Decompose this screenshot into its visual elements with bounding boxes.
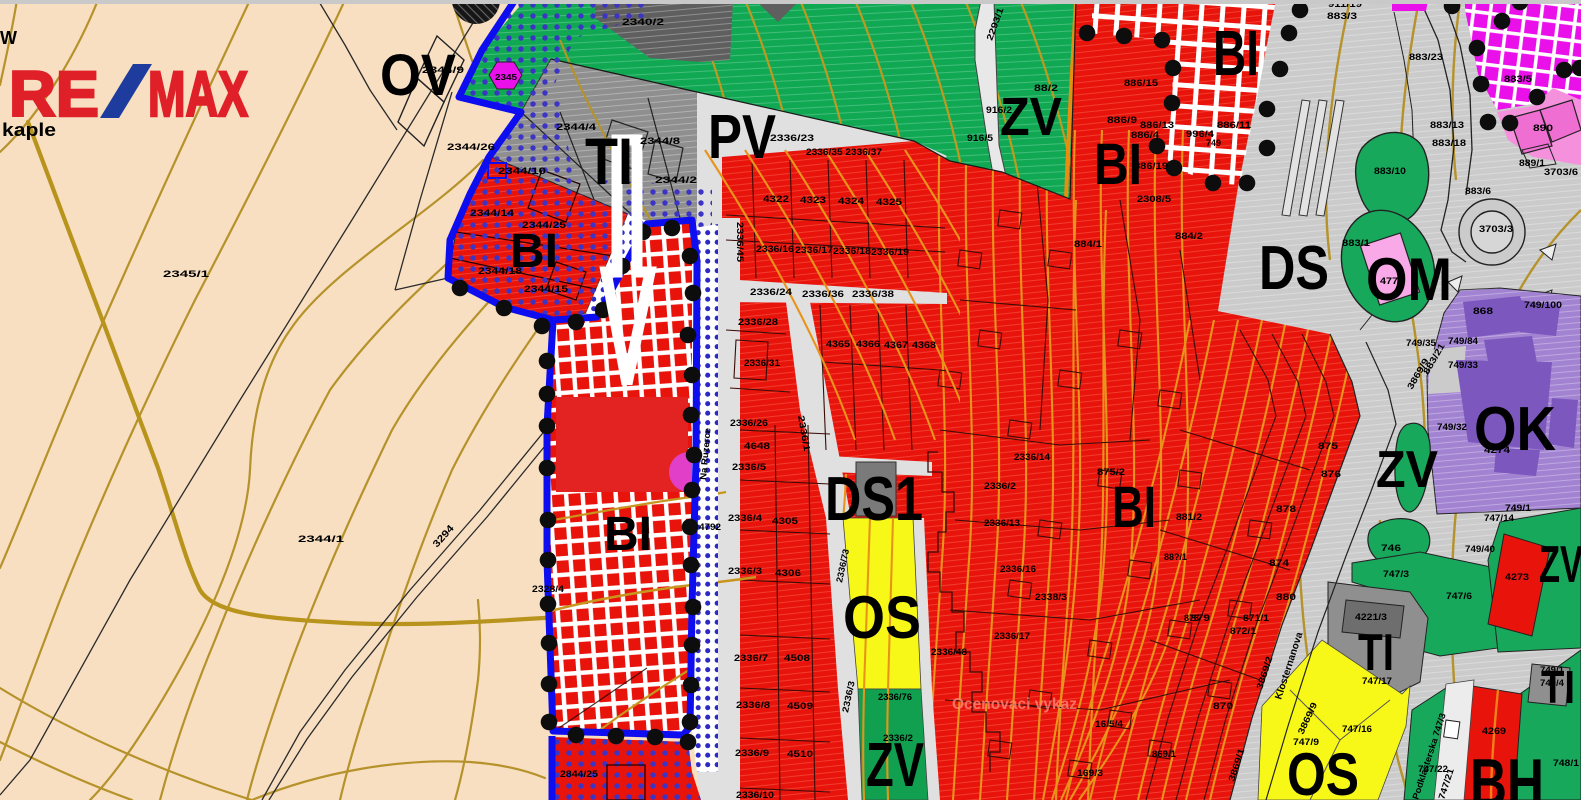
svg-text:2338/3: 2338/3 (1035, 592, 1067, 602)
svg-text:883/23: 883/23 (1409, 52, 1443, 62)
svg-text:3703/6: 3703/6 (1544, 167, 1578, 177)
svg-text:748/1: 748/1 (1553, 758, 1579, 768)
svg-text:4772: 4772 (1380, 276, 1404, 286)
svg-text:2344/10: 2344/10 (498, 166, 546, 176)
svg-text:4368: 4368 (912, 340, 936, 350)
svg-text:749/4: 749/4 (1540, 678, 1564, 688)
svg-text:4365: 4365 (826, 339, 850, 349)
svg-text:4510: 4510 (787, 749, 813, 759)
svg-text:3703/3: 3703/3 (1479, 224, 1513, 234)
svg-text:ZV: ZV (1000, 87, 1062, 147)
svg-text:88/2: 88/2 (1034, 83, 1058, 93)
svg-text:BI: BI (1112, 475, 1156, 540)
svg-text:16/5/4: 16/5/4 (1095, 719, 1123, 729)
svg-text:870: 870 (1213, 701, 1233, 711)
svg-text:ZV: ZV (1376, 441, 1438, 499)
svg-text:2336/35 2336/37: 2336/35 2336/37 (806, 147, 882, 157)
svg-text:747/6: 747/6 (1446, 591, 1472, 601)
svg-text:TI: TI (1358, 624, 1394, 682)
svg-text:2336/2: 2336/2 (984, 481, 1016, 491)
svg-text:4367: 4367 (884, 340, 908, 350)
svg-text:889/1: 889/1 (1519, 158, 1545, 168)
svg-text:747/16: 747/16 (1342, 724, 1372, 734)
svg-text:2344/1: 2344/1 (298, 534, 344, 544)
svg-text:2344/2: 2344/2 (655, 175, 697, 185)
svg-text:883/10: 883/10 (1374, 166, 1406, 176)
svg-text:TI: TI (585, 124, 633, 198)
svg-text:OS: OS (843, 584, 921, 651)
svg-text:746: 746 (1381, 543, 1401, 553)
svg-text:884/2: 884/2 (1175, 231, 1203, 241)
svg-text:874: 874 (1269, 558, 1289, 568)
svg-text:2336/8: 2336/8 (736, 700, 770, 710)
svg-text:2336/48: 2336/48 (931, 647, 967, 657)
svg-text:883/6: 883/6 (1465, 186, 1491, 196)
svg-text:749/84: 749/84 (1448, 336, 1478, 346)
svg-text:883/13: 883/13 (1430, 120, 1464, 130)
svg-text:4322: 4322 (763, 194, 789, 204)
svg-text:749/1: 749/1 (1505, 503, 1531, 513)
svg-text:884/1: 884/1 (1074, 239, 1102, 249)
svg-text:747/17: 747/17 (1362, 676, 1392, 686)
svg-text:Ocenovaci vykaz: Ocenovaci vykaz (952, 696, 1077, 713)
svg-text:4324: 4324 (838, 196, 864, 206)
svg-text:2336/28: 2336/28 (738, 317, 778, 327)
svg-text:2336/14: 2336/14 (1014, 452, 1050, 462)
svg-text:DS: DS (1259, 234, 1329, 303)
svg-text:DS1: DS1 (825, 465, 923, 534)
svg-text:W: W (0, 28, 17, 48)
svg-text:875: 875 (1318, 441, 1338, 451)
svg-text:2844/25: 2844/25 (560, 769, 598, 779)
svg-text:883/18: 883/18 (1432, 138, 1466, 148)
svg-text:749/35: 749/35 (1406, 338, 1436, 348)
svg-text:886/15: 886/15 (1124, 78, 1158, 88)
svg-text:2336/5: 2336/5 (732, 462, 766, 472)
svg-text:4305: 4305 (772, 516, 798, 526)
svg-text:RE: RE (9, 58, 99, 130)
svg-text:2336/19: 2336/19 (871, 247, 909, 257)
svg-text:872/1: 872/1 (1230, 626, 1256, 636)
svg-text:OM: OM (1366, 246, 1452, 313)
svg-text:2344/14: 2344/14 (470, 208, 514, 218)
svg-text:2336/17: 2336/17 (994, 631, 1030, 641)
svg-text:747/3: 747/3 (1383, 569, 1409, 579)
svg-text:2345: 2345 (495, 73, 518, 82)
svg-text:MAX: MAX (148, 58, 248, 130)
svg-text:2344/25: 2344/25 (522, 220, 566, 230)
svg-text:4273: 4273 (1505, 572, 1529, 582)
svg-text:4306: 4306 (775, 568, 801, 578)
svg-text:2336/76: 2336/76 (878, 692, 912, 702)
svg-text:749/33: 749/33 (1448, 360, 1478, 370)
svg-text:2336/36: 2336/36 (802, 289, 844, 299)
svg-text:883/1: 883/1 (1342, 238, 1370, 248)
svg-text:2344/4: 2344/4 (556, 122, 596, 132)
svg-text:BI: BI (1213, 17, 1259, 89)
svg-text:BI: BI (604, 508, 652, 561)
svg-text:2336/31: 2336/31 (744, 358, 780, 368)
svg-text:2336/26: 2336/26 (730, 418, 768, 428)
svg-text:2336/7: 2336/7 (734, 653, 768, 663)
svg-text:2344/15: 2344/15 (524, 284, 568, 294)
svg-text:2336/23: 2336/23 (770, 133, 814, 143)
svg-text:BH: BH (1470, 745, 1544, 800)
svg-text:749/32: 749/32 (1437, 422, 1467, 432)
svg-text:2344/26: 2344/26 (447, 142, 495, 152)
svg-text:880: 880 (1276, 592, 1296, 602)
svg-text:2340/2: 2340/2 (622, 17, 664, 27)
svg-text:4221/3: 4221/3 (1355, 612, 1387, 622)
svg-text:2345/1: 2345/1 (163, 269, 209, 279)
svg-text:749: 749 (1206, 138, 1221, 148)
svg-text:2336/9: 2336/9 (735, 748, 769, 758)
svg-text:2336/16: 2336/16 (1000, 564, 1036, 574)
svg-text:4323: 4323 (800, 195, 826, 205)
svg-text:886/9: 886/9 (1107, 115, 1137, 125)
svg-text:2344/9: 2344/9 (422, 65, 464, 75)
svg-text:873: 873 (1184, 613, 1199, 623)
svg-text:2336/4: 2336/4 (728, 513, 762, 523)
svg-text:4325: 4325 (876, 197, 902, 207)
svg-text:749/40: 749/40 (1465, 544, 1495, 554)
svg-text:OV: OV (380, 43, 456, 108)
svg-text:2344/18: 2344/18 (478, 266, 522, 276)
svg-text:2336/13: 2336/13 (984, 518, 1020, 528)
svg-text:875/2: 875/2 (1097, 467, 1125, 477)
svg-text:2336/2: 2336/2 (883, 733, 913, 743)
svg-text:747/9: 747/9 (1293, 737, 1319, 747)
svg-text:747/14: 747/14 (1484, 513, 1514, 523)
svg-text:2336/3: 2336/3 (728, 566, 762, 576)
svg-text:2336/38: 2336/38 (852, 289, 894, 299)
svg-text:2336/24: 2336/24 (750, 287, 792, 297)
svg-text:886/11: 886/11 (1217, 120, 1251, 130)
svg-text:4508: 4508 (784, 653, 810, 663)
svg-text:2336/10: 2336/10 (736, 790, 774, 800)
svg-text:871/1: 871/1 (1243, 613, 1269, 623)
svg-text:4792: 4792 (699, 522, 721, 532)
svg-text:88?/1: 88?/1 (1164, 552, 1187, 562)
svg-text:2328/4: 2328/4 (532, 584, 564, 594)
svg-text:876: 876 (1321, 469, 1341, 479)
svg-text:886/4: 886/4 (1131, 130, 1159, 140)
svg-text:PV: PV (708, 103, 776, 172)
svg-text:881/2: 881/2 (1176, 512, 1202, 522)
svg-text:4269: 4269 (1482, 726, 1506, 736)
svg-text:4274: 4274 (1484, 445, 1510, 455)
svg-text:2336/16: 2336/16 (756, 244, 794, 254)
svg-text:868: 868 (1473, 306, 1493, 316)
svg-text:4509: 4509 (787, 701, 813, 711)
svg-text:749/1: 749/1 (1540, 665, 1564, 675)
svg-text:2308/5: 2308/5 (1137, 194, 1171, 204)
svg-text:4648: 4648 (744, 441, 770, 451)
svg-text:2336/17: 2336/17 (795, 245, 833, 255)
svg-text:2336/45: 2336/45 (735, 222, 745, 262)
svg-text:878: 878 (1276, 504, 1296, 514)
svg-text:890: 890 (1533, 123, 1553, 133)
svg-text:886/19: 886/19 (1134, 161, 1168, 171)
svg-text:2344/8: 2344/8 (640, 136, 680, 146)
svg-text:749/100: 749/100 (1524, 300, 1562, 310)
svg-text:4366: 4366 (856, 339, 880, 349)
svg-text:916/2: 916/2 (986, 105, 1012, 115)
svg-text:883/5: 883/5 (1504, 74, 1532, 84)
svg-text:886/13: 886/13 (1140, 120, 1174, 130)
svg-text:916/5: 916/5 (967, 133, 993, 143)
svg-text:OS: OS (1287, 741, 1359, 800)
svg-text:869/1: 869/1 (1152, 749, 1176, 759)
svg-text:ZV: ZV (1539, 536, 1581, 594)
svg-text:2336/18: 2336/18 (833, 246, 871, 256)
svg-text:883/3: 883/3 (1327, 11, 1357, 21)
svg-text:169/3: 169/3 (1077, 768, 1103, 778)
